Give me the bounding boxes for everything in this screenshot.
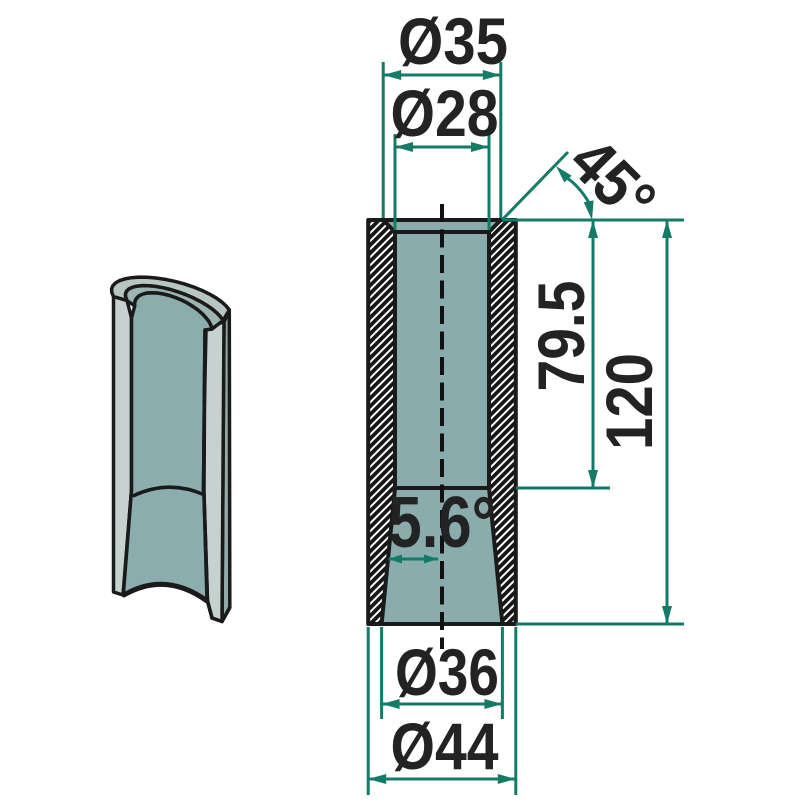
svg-text:120: 120 xyxy=(592,353,666,450)
svg-text:Ø35: Ø35 xyxy=(398,4,508,78)
svg-text:Ø44: Ø44 xyxy=(391,709,499,783)
svg-text:Ø36: Ø36 xyxy=(395,635,499,709)
svg-text:Ø28: Ø28 xyxy=(391,76,499,150)
svg-text:79.5: 79.5 xyxy=(524,281,598,392)
svg-text:5.6°: 5.6° xyxy=(389,483,496,563)
